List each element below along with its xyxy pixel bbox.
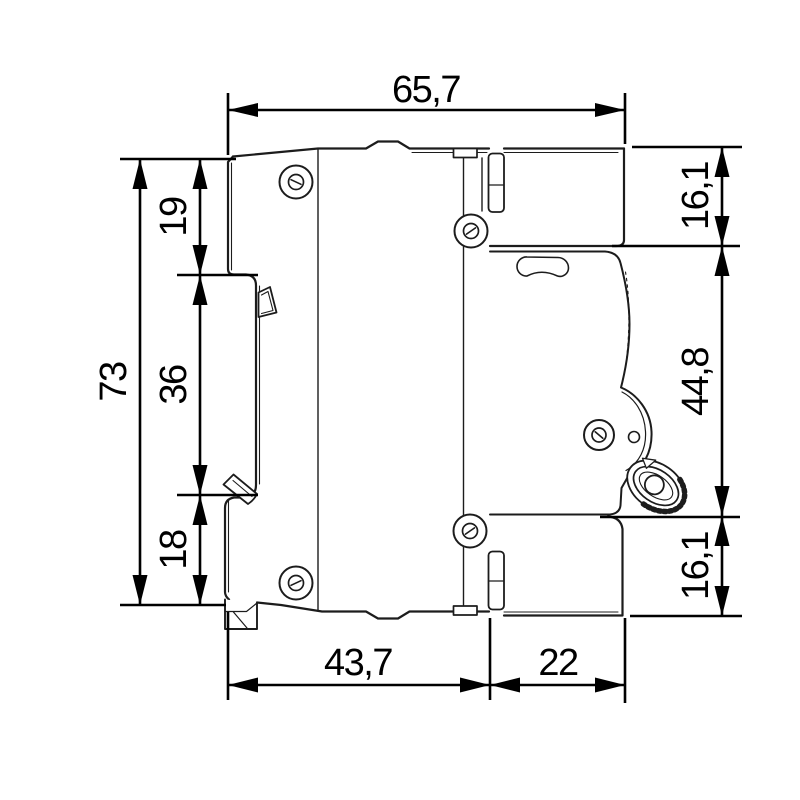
breaker-back-inner-lines — [229, 163, 260, 592]
terminal-block-top — [489, 154, 505, 213]
dim-label-front-middle: 44,8 — [675, 348, 717, 416]
terminal-block-bottom — [489, 552, 505, 610]
dim-label-front-bottom: 16,1 — [675, 532, 717, 600]
dim-label-front-depth: 22 — [538, 642, 578, 684]
terminal-screw-top-right — [455, 215, 488, 248]
dim-label-back-top: 19 — [153, 197, 195, 237]
face-pin-hole — [629, 432, 640, 443]
dim-label-recess-height: 36 — [153, 365, 195, 405]
dim-label-front-top: 16,1 — [675, 162, 717, 230]
dimension-annotations: 65,7 73 19 36 18 16,1 44,8 16,1 43,7 22 — [93, 69, 742, 703]
terminal-screw-top-left — [280, 166, 313, 199]
breaker-dimension-drawing: 65,7 73 19 36 18 16,1 44,8 16,1 43,7 22 — [0, 0, 800, 800]
bottom-tab — [454, 606, 478, 615]
terminal-screw-bottom-left — [280, 567, 313, 600]
dim-label-total-height: 73 — [93, 362, 135, 402]
terminal-screw-bottom-right — [454, 515, 487, 548]
terminal-box-right-edge — [490, 149, 624, 247]
dim-label-total-depth: 65,7 — [392, 69, 460, 111]
breaker-side-view — [224, 142, 695, 630]
lower-front-box — [504, 517, 623, 616]
breaker-top-edge — [233, 142, 624, 157]
din-clip-slider — [225, 600, 257, 630]
toggle-lever — [618, 450, 695, 522]
technical-drawing-canvas: 65,7 73 19 36 18 16,1 44,8 16,1 43,7 22 — [0, 0, 800, 800]
dim-label-back-bottom: 18 — [153, 530, 195, 570]
dim-label-rear-depth: 43,7 — [324, 642, 392, 684]
face-screw — [584, 420, 614, 450]
breaker-back-outline — [225, 157, 256, 600]
din-clip-top — [259, 287, 277, 317]
label-window — [517, 257, 569, 276]
top-tab — [454, 149, 478, 158]
